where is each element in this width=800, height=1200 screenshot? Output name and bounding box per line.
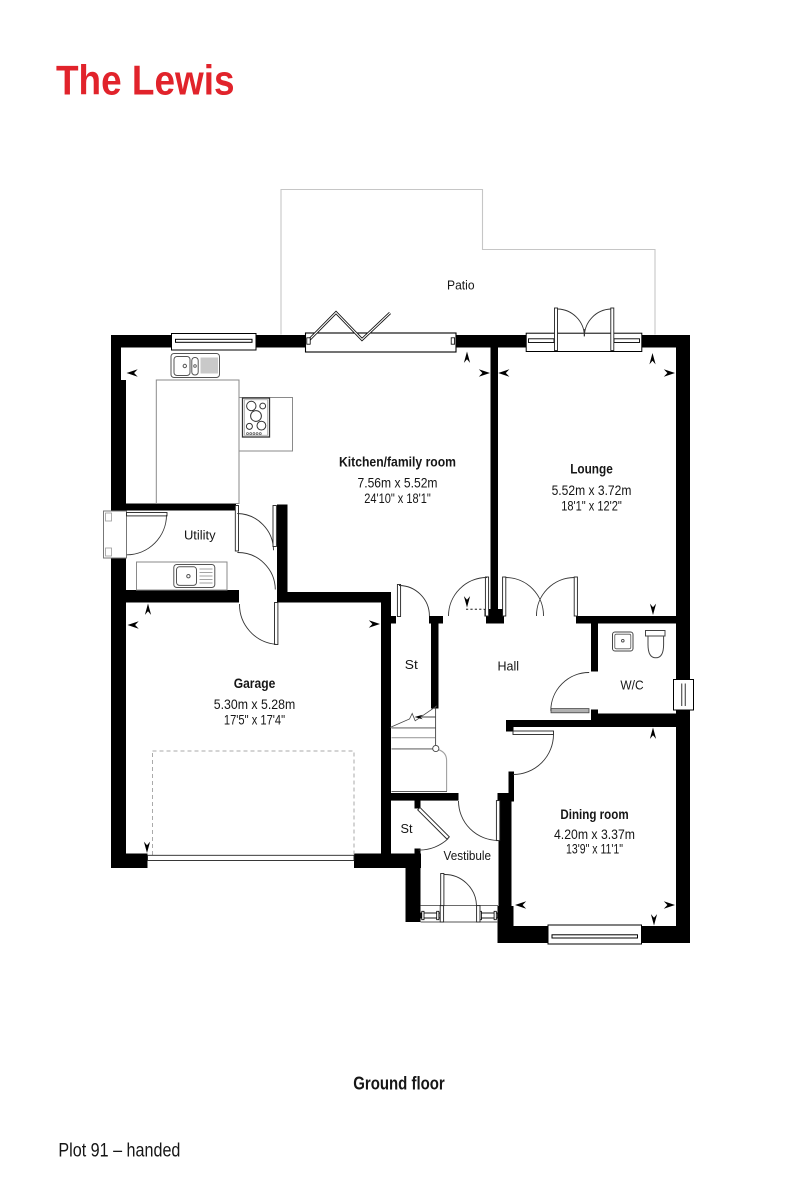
svg-text:Lounge: Lounge <box>570 462 613 477</box>
svg-text:W/C: W/C <box>620 678 644 693</box>
svg-text:13'9" x 11'1": 13'9" x 11'1" <box>566 842 623 857</box>
svg-text:Dining room: Dining room <box>560 807 628 822</box>
svg-text:St: St <box>401 821 413 836</box>
svg-text:Plot 91 – handed: Plot 91 – handed <box>58 1139 180 1161</box>
svg-text:18'1" x 12'2": 18'1" x 12'2" <box>561 499 622 514</box>
svg-text:Kitchen/family room: Kitchen/family room <box>339 455 456 470</box>
svg-text:17'5" x 17'4": 17'5" x 17'4" <box>224 713 285 728</box>
svg-text:7.56m x 5.52m: 7.56m x 5.52m <box>358 476 438 491</box>
svg-text:St: St <box>405 657 418 672</box>
svg-text:5.30m x 5.28m: 5.30m x 5.28m <box>214 697 295 712</box>
svg-text:Ground floor: Ground floor <box>353 1074 445 1094</box>
svg-text:4.20m x 3.37m: 4.20m x 3.37m <box>554 827 635 842</box>
svg-text:Patio: Patio <box>447 278 475 293</box>
svg-text:Hall: Hall <box>498 659 520 674</box>
svg-text:24'10" x 18'1": 24'10" x 18'1" <box>364 491 431 506</box>
svg-text:Garage: Garage <box>234 676 276 691</box>
svg-text:The Lewis: The Lewis <box>56 57 235 104</box>
svg-text:5.52m x 3.72m: 5.52m x 3.72m <box>552 483 632 498</box>
svg-text:Vestibule: Vestibule <box>444 848 492 863</box>
svg-text:Utility: Utility <box>184 528 216 543</box>
